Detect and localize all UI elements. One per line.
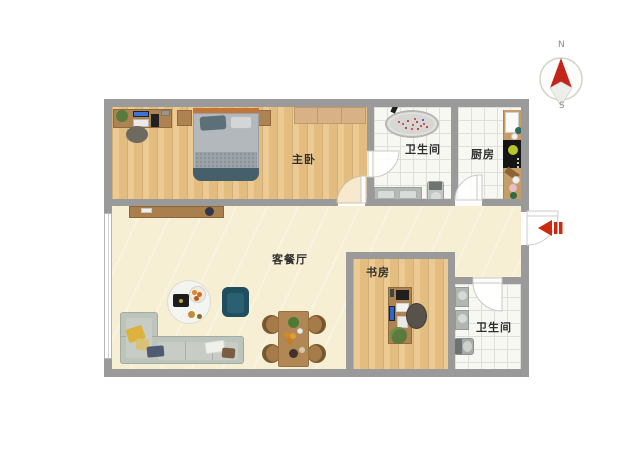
plate-icon <box>511 133 518 140</box>
sink-basin <box>458 291 467 300</box>
toilet-tank <box>429 182 442 190</box>
throw-brown <box>222 347 236 358</box>
table-fruit-icon <box>284 332 290 338</box>
toilet-bowl <box>463 341 472 352</box>
console-item-icon <box>141 208 152 213</box>
wall-outer-bottom <box>104 369 529 377</box>
dining-chair <box>307 315 326 334</box>
toilet-tank <box>455 339 462 354</box>
wall-bathroom-bottom <box>365 199 455 206</box>
wall-bathroom-kitchen <box>451 107 458 199</box>
compass-north-label: N <box>558 40 565 50</box>
wall-outer-right-lower <box>521 245 529 377</box>
table-bowl-icon <box>289 349 298 358</box>
fruit-plate <box>189 286 206 303</box>
compass-rose-icon <box>540 58 582 106</box>
room-label-ensuite-bathroom: 卫生间 <box>405 141 441 157</box>
table-plant-icon <box>288 317 299 328</box>
pen-cup-icon <box>390 289 394 297</box>
study-chair <box>406 303 427 329</box>
study-plant-icon <box>390 327 407 344</box>
room-label-kitchen: 厨房 <box>471 146 495 162</box>
table-cup-icon <box>297 328 303 334</box>
plate-icon <box>512 176 520 184</box>
desk-plant-icon <box>116 110 128 122</box>
wall-outer-left-lower <box>104 357 112 377</box>
wall-outer-left-upper <box>104 99 112 215</box>
sofa-seam <box>185 342 186 360</box>
table-decor-icon <box>188 311 195 318</box>
wall-outer-right-upper <box>521 99 529 212</box>
plate-icon <box>509 184 517 192</box>
sink-basin <box>377 190 395 199</box>
room-label-master-bedroom: 主卧 <box>292 151 316 167</box>
ensuite-door-leaf <box>368 151 373 177</box>
window-left <box>104 213 112 359</box>
room-label-study: 书房 <box>366 264 390 280</box>
armchair-seat <box>227 293 244 313</box>
wardrobe-seam <box>317 107 318 124</box>
wall-study-left <box>346 252 353 369</box>
sink-basin <box>399 190 417 199</box>
compass-south-label: S <box>559 101 565 111</box>
sink-basin <box>458 314 467 323</box>
bathtub-inner <box>390 114 434 134</box>
entrance-door-leaf <box>527 211 558 216</box>
entrance-arrow-icon <box>538 220 563 236</box>
bed-pillow-dark <box>200 115 227 131</box>
tray-decor-icon <box>179 299 183 303</box>
bedroom-desk-chair <box>126 126 148 143</box>
wall-bedroom-bottom <box>104 199 338 206</box>
wall-bedroom-bathroom-upper <box>367 107 374 151</box>
desk-item-icon <box>161 110 170 116</box>
fruit-icon <box>192 290 197 295</box>
wall-guest-bath-top-right <box>502 277 521 284</box>
wall-study-right <box>448 252 455 369</box>
study-monitor-icon <box>389 306 395 321</box>
wardrobe <box>294 107 366 124</box>
wall-guest-bath-top-left <box>448 277 473 284</box>
console-speaker-icon <box>205 207 214 216</box>
desk-monitor-icon <box>133 111 149 117</box>
study-laptop-icon <box>396 290 409 300</box>
wall-outer-top <box>104 99 529 107</box>
room-label-living-dining: 客餐厅 <box>272 251 308 267</box>
floor-plan: 主卧 卫生间 厨房 客餐厅 书房 卫生间 N S <box>0 0 637 472</box>
bathtub-petals <box>398 121 400 123</box>
bed-foot-throw <box>193 168 259 181</box>
pillow-navy <box>147 345 165 357</box>
entrance-door-swing <box>527 214 558 245</box>
wall-study-top <box>346 252 448 259</box>
nightstand-left <box>177 110 192 126</box>
bowl-icon <box>510 192 517 199</box>
wardrobe-seam <box>341 107 342 124</box>
room-label-guest-bathroom: 卫生间 <box>476 319 512 335</box>
stove-burner <box>508 145 518 155</box>
dining-chair <box>307 344 326 363</box>
wall-kitchen-bottom <box>482 199 521 206</box>
bed-blanket-textured <box>195 152 257 168</box>
table-dish-icon <box>299 347 305 353</box>
bed-pillow-light <box>230 116 252 129</box>
stove-knobs <box>517 158 519 160</box>
desk-tower-icon <box>151 114 159 127</box>
wall-bedroom-bathroom-lower <box>367 177 374 199</box>
